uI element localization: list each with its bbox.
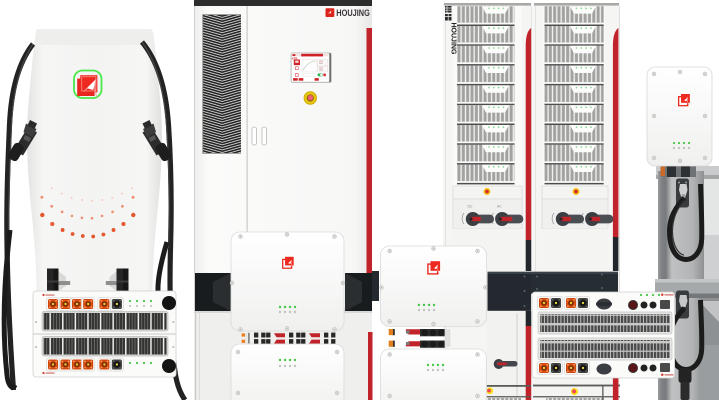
svg-text:AC: AC — [497, 205, 502, 209]
svg-text:HOUJING: HOUJING — [450, 23, 457, 55]
svg-text:HOUJING: HOUJING — [336, 8, 370, 18]
svg-text:DC: DC — [468, 205, 473, 209]
